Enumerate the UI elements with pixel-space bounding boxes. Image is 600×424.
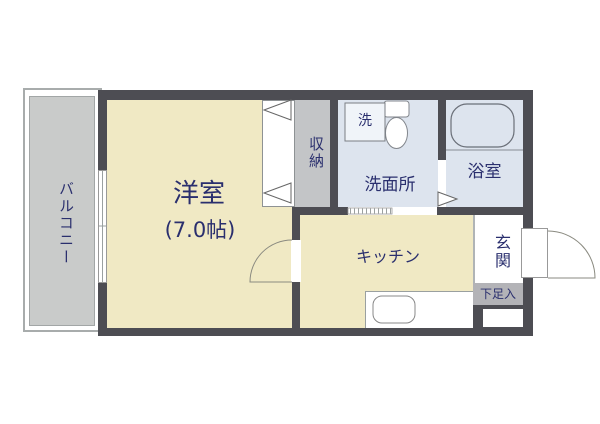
wall-mid-right [437,207,533,215]
shoe-box-label: 下足入 [473,288,523,302]
bathroom-area [446,100,523,207]
wall-top [98,90,533,100]
balcony-window [98,170,107,283]
western-room-label: 洋室 [139,180,259,210]
floorplan: バルコニー 洋室 (7.0帖) 収納 洗 洗面所 浴室 キッチン 玄関 下足入 [0,0,600,424]
wall-left-lower [98,283,107,328]
kitchen-counter [365,291,473,328]
closet-door-strip [262,100,295,207]
kitchen-entrance-divider [473,215,475,283]
wall-mid-left [292,207,348,215]
entrance-door-opening [521,228,548,278]
entrance-door-arc [548,231,595,278]
closet-label: 収納 [302,122,324,184]
bathroom-label: 浴室 [446,163,523,183]
washing-machine-label: 洗 [345,113,385,129]
washroom-label: 洗面所 [338,176,442,196]
wall-bottom [98,328,533,336]
wall-washroom-bathroom [438,100,446,160]
wall-left-upper [98,100,107,170]
wall-closet-washroom [330,100,338,215]
wall-room-kitchen-lower [292,282,300,328]
kitchen-label: キッチン [310,248,466,266]
washroom-door-opening [348,207,437,215]
entrance-label: 玄関 [488,227,510,277]
western-room-size-label: (7.0帖) [138,218,262,242]
wall-room-kitchen-upper [292,215,300,240]
balcony-label: バルコニー [50,164,74,282]
entry-step-notch [483,309,523,327]
room-door-opening [291,240,301,282]
